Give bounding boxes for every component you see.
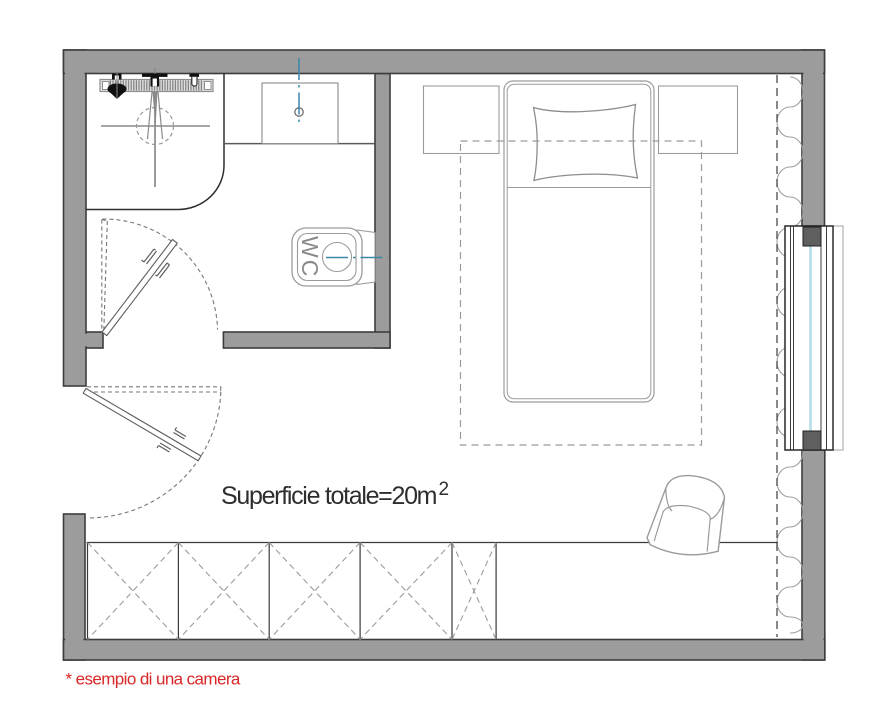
svg-text:WC: WC	[297, 236, 323, 278]
svg-text:* esempio di una camera: * esempio di una camera	[66, 670, 241, 689]
svg-text:Superficie totale=20m: Superficie totale=20m	[221, 482, 437, 510]
svg-text:2: 2	[439, 479, 450, 500]
